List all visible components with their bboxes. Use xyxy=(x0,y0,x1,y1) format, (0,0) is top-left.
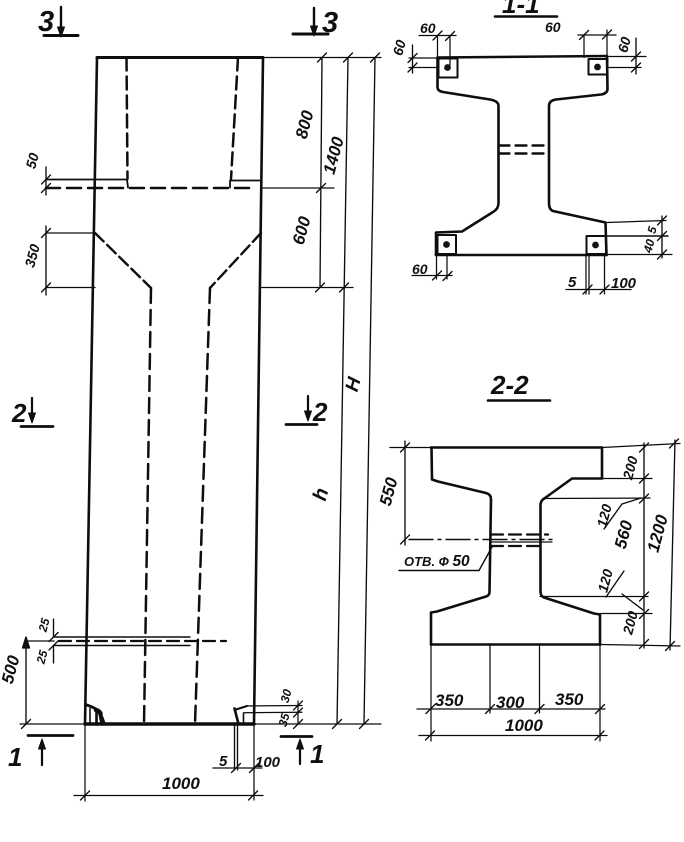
svg-text:3: 3 xyxy=(38,6,54,38)
svg-text:100: 100 xyxy=(255,754,281,771)
svg-text:ОТВ. Ф 50: ОТВ. Ф 50 xyxy=(404,553,470,570)
svg-text:300: 300 xyxy=(496,693,525,712)
svg-text:5: 5 xyxy=(568,274,577,291)
svg-text:350: 350 xyxy=(435,691,464,710)
svg-text:3: 3 xyxy=(322,7,338,39)
svg-text:2: 2 xyxy=(312,397,328,427)
svg-text:1000: 1000 xyxy=(162,774,200,793)
svg-text:2: 2 xyxy=(11,398,27,428)
svg-text:1: 1 xyxy=(310,739,324,769)
svg-text:2-2: 2-2 xyxy=(490,370,529,400)
svg-text:1000: 1000 xyxy=(505,716,543,735)
svg-text:60: 60 xyxy=(420,20,436,36)
svg-text:5: 5 xyxy=(219,753,228,770)
svg-text:1: 1 xyxy=(8,742,22,772)
svg-text:350: 350 xyxy=(555,690,584,709)
svg-text:100: 100 xyxy=(611,275,637,292)
svg-text:60: 60 xyxy=(545,19,561,35)
svg-text:60: 60 xyxy=(412,261,428,277)
